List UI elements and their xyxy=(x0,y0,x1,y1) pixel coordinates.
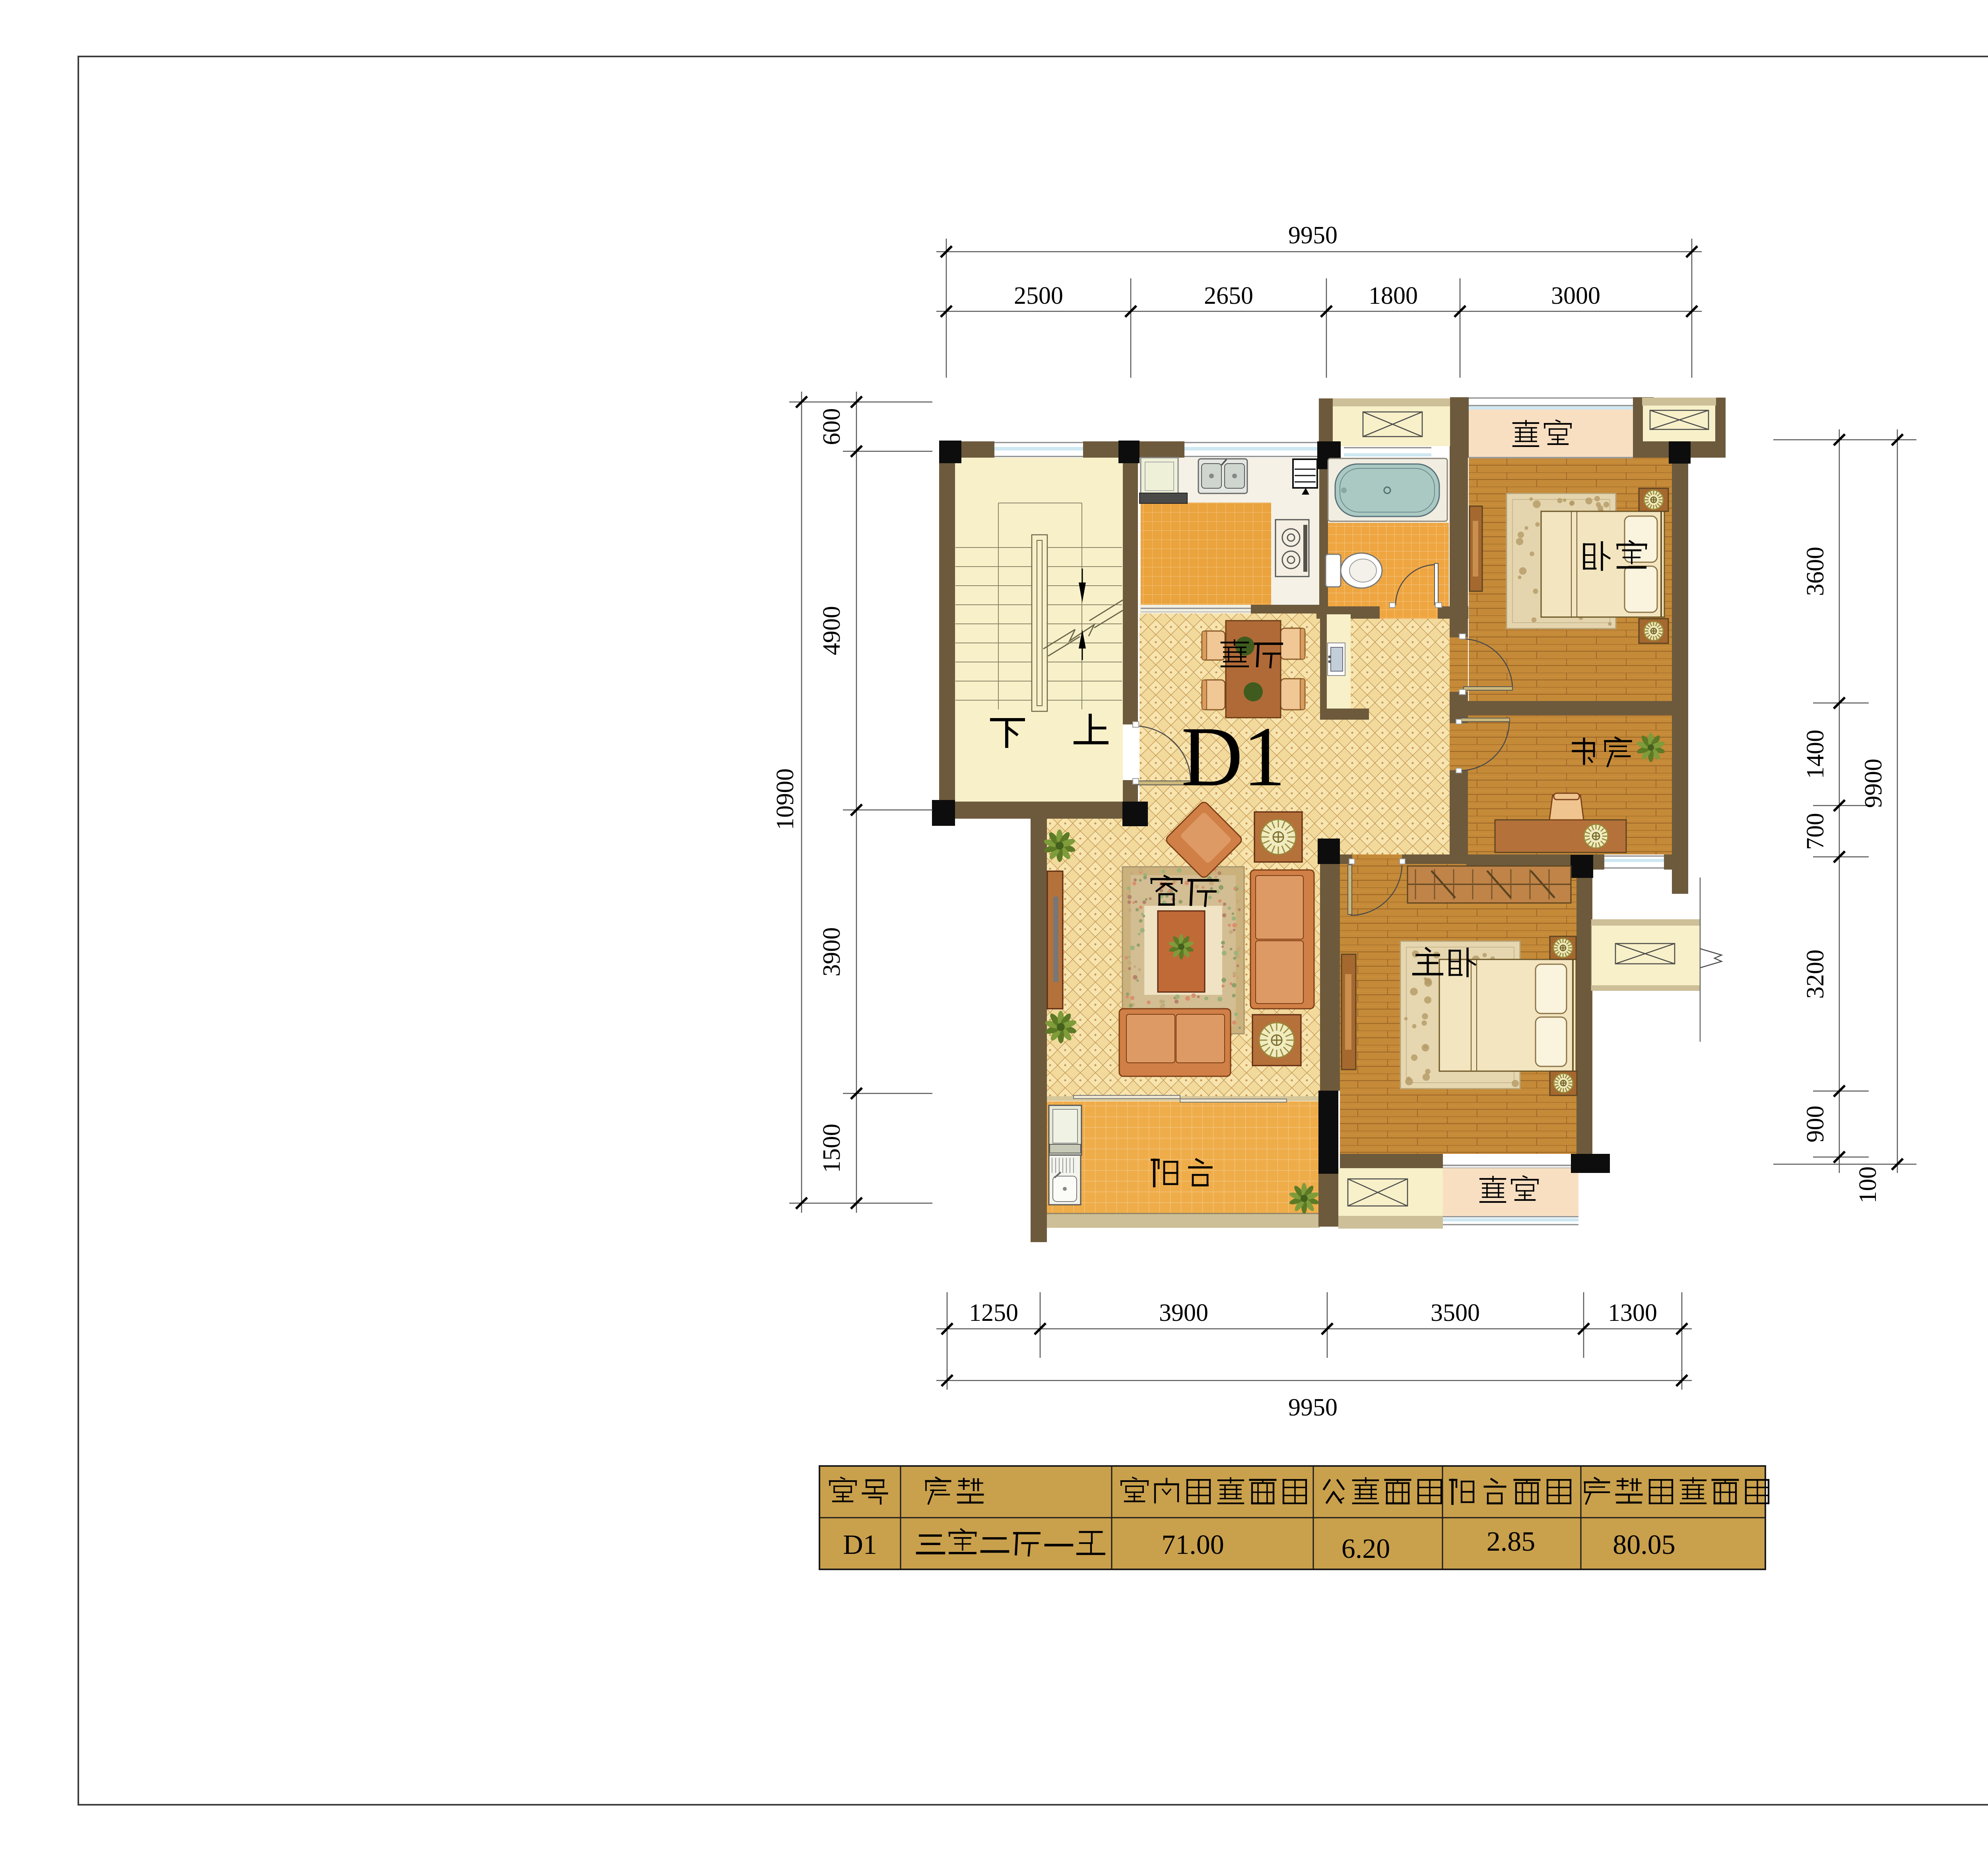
svg-text:6.20: 6.20 xyxy=(1342,1534,1390,1564)
svg-text:10900: 10900 xyxy=(772,769,799,830)
svg-text:1800: 1800 xyxy=(1369,282,1418,309)
svg-text:100: 100 xyxy=(1854,1167,1881,1204)
svg-text:D1: D1 xyxy=(843,1530,877,1560)
svg-text:80.05: 80.05 xyxy=(1613,1530,1675,1560)
svg-text:700: 700 xyxy=(1802,813,1829,850)
svg-text:3600: 3600 xyxy=(1802,547,1829,596)
svg-text:2650: 2650 xyxy=(1204,282,1253,309)
svg-text:3900: 3900 xyxy=(818,927,845,977)
svg-text:3500: 3500 xyxy=(1431,1299,1480,1326)
svg-text:1250: 1250 xyxy=(969,1299,1018,1326)
svg-text:3200: 3200 xyxy=(1802,949,1829,999)
svg-text:4900: 4900 xyxy=(818,606,845,655)
svg-text:D1: D1 xyxy=(1181,709,1286,804)
svg-text:9900: 9900 xyxy=(1860,759,1887,808)
svg-text:9950: 9950 xyxy=(1288,1394,1338,1421)
svg-text:2500: 2500 xyxy=(1014,282,1063,309)
svg-text:1400: 1400 xyxy=(1802,730,1829,779)
svg-text:900: 900 xyxy=(1802,1106,1829,1143)
svg-text:71.00: 71.00 xyxy=(1161,1530,1224,1560)
svg-text:3000: 3000 xyxy=(1551,282,1600,309)
svg-text:600: 600 xyxy=(818,408,845,445)
svg-text:3900: 3900 xyxy=(1159,1299,1208,1326)
svg-text:9950: 9950 xyxy=(1288,222,1338,249)
svg-text:1300: 1300 xyxy=(1608,1299,1657,1326)
svg-text:1500: 1500 xyxy=(818,1124,845,1173)
svg-text:2.85: 2.85 xyxy=(1487,1526,1536,1557)
